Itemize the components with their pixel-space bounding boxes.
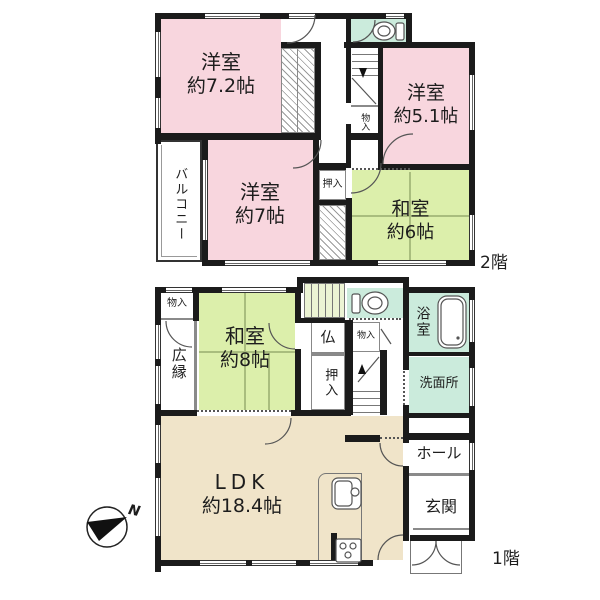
sliding-opening [380,437,403,439]
wall [344,42,475,48]
floor-label-2f: 2階 [480,253,530,274]
closet-hatched-2f-a [281,48,315,133]
wall [346,13,351,103]
wall [291,410,351,416]
window [310,560,358,566]
entrance-porch [410,541,462,574]
washroom-label: 洗面所 [409,376,469,392]
compass-icon [87,507,127,547]
wall [380,350,387,415]
room-name: 和室 [195,324,295,349]
sliding-opening [349,318,401,320]
sliding-opening [403,371,405,405]
hall-entrance-divider [409,473,469,476]
compass-north-label: N [122,501,145,522]
balcony-label: バルコニー [171,150,187,258]
closet-door-flap [381,329,391,344]
monoire-1f-top-label: 物入 [161,298,193,311]
window [166,287,192,293]
monoire-divider [161,318,193,320]
room-size: 約5.1帖 [381,106,471,129]
wall [315,42,321,139]
sliding-opening [352,168,410,170]
stairs-1f-lower-treads [352,385,380,413]
room-label-yoshitsu-7: 洋室 約7帖 [207,180,313,229]
window [155,425,161,463]
window [155,98,161,128]
room-label-washitsu-6: 和室 約6帖 [352,198,469,244]
room-size: 約6帖 [352,222,469,245]
floor-label-1f: 1階 [492,549,542,570]
wall [403,405,409,443]
wall [403,413,475,418]
wall [161,133,321,140]
wall [301,318,345,323]
toilet-room-2f [351,19,406,42]
oshiire-2f-label: 押入 [319,179,346,192]
window [289,13,315,19]
closet-divider-line [297,48,298,133]
window [469,215,475,250]
bathroom-label: 浴室 [413,297,431,347]
toilet-room-1f [347,288,403,318]
room-name: 洋室 [381,82,471,106]
butsuma-oshiire-divider [311,353,345,355]
window [155,478,161,536]
wall [193,287,199,321]
room-name: 洋室 [207,180,313,205]
room-size: 約8帖 [195,349,295,373]
room-size: 約18.4帖 [163,495,321,519]
wall [295,349,301,416]
entrance-step-line [413,528,469,530]
window [378,260,446,266]
window [222,287,286,293]
wall [313,163,346,170]
wall [410,535,475,541]
wall [403,466,409,541]
window [469,300,475,342]
wall [155,13,412,19]
butsuma-label: 仏 [311,328,345,347]
wall [297,277,409,283]
oshiire-1f-label: 押入 [321,358,337,408]
door-arc [287,15,315,43]
wall [403,287,409,370]
stairs-1f-upper-treads [305,284,344,317]
room-label-washitsu-8: 和室 約8帖 [195,324,295,373]
hall-label: ホール [409,444,469,463]
monoire-2f-label: 物入 [358,110,369,134]
room-label-yoshitsu-5-1: 洋室 約5.1帖 [381,82,471,128]
closet-hatched-2f-b [319,205,346,260]
room-name: LDK [163,470,321,495]
kitchen-counter [318,473,362,563]
window [155,325,161,359]
floor-plan: 洋室 約7.2帖 洋室 約5.1帖 洋室 約7帖 和室 約6帖 バルコニー 押入… [0,0,600,600]
room-size: 約7.2帖 [161,75,281,99]
stairs-2f-treads [352,48,378,78]
wall [346,140,351,168]
wall [403,287,475,293]
room-name: 洋室 [161,50,281,75]
window [155,366,161,404]
wall [346,133,383,140]
window [386,13,404,19]
wall [161,410,197,416]
entrance-label: 玄関 [413,497,469,517]
wall [409,352,469,356]
wall [331,533,337,560]
window [205,13,260,19]
window [252,560,296,566]
wall [313,200,346,205]
window [469,368,475,406]
window [469,443,475,470]
room-label-yoshitsu-7-2: 洋室 約7.2帖 [161,50,281,99]
room-size: 約7帖 [207,205,313,229]
hiroen-label: 広縁 [169,335,188,393]
wall [345,435,380,442]
stairs-monoire-divider [351,105,378,107]
monoire-1f-mid-label: 物入 [352,331,380,342]
room-name: 和室 [352,198,469,222]
window [225,260,310,266]
window [200,560,246,566]
sliding-opening [197,410,291,412]
wall [403,433,475,440]
room-label-ldk: LDK 約18.4帖 [163,470,321,519]
